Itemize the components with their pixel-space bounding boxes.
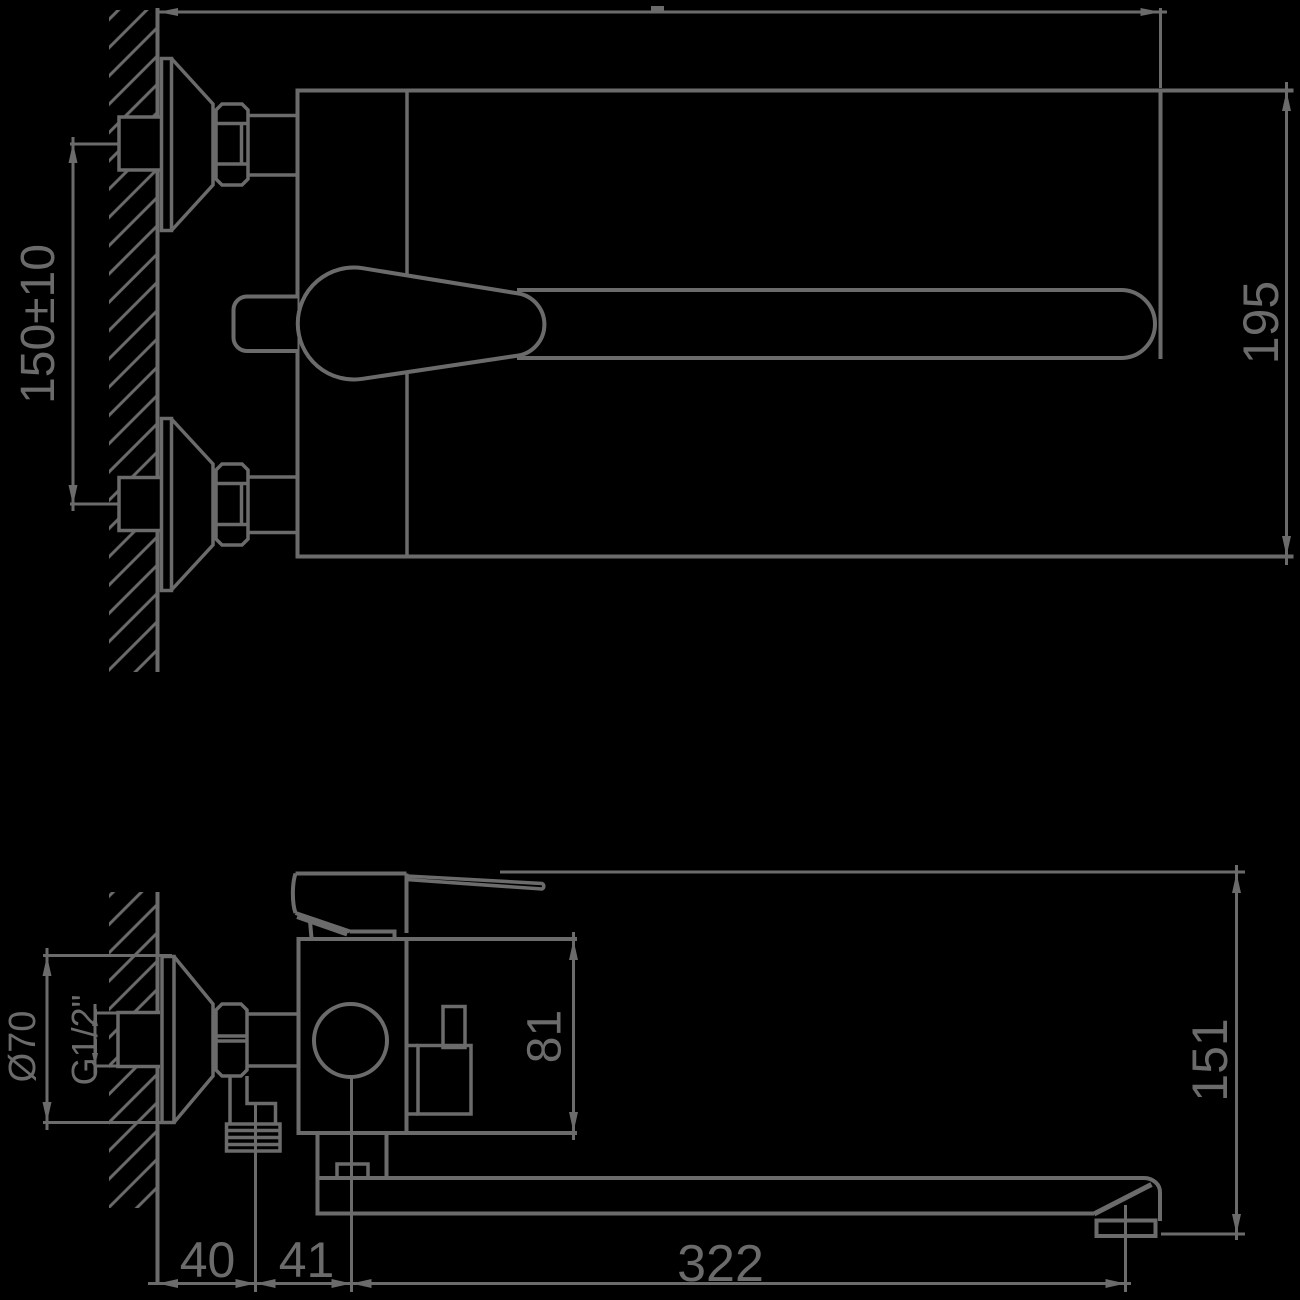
svg-text:40: 40 <box>180 1232 236 1288</box>
svg-text:150±10: 150±10 <box>12 244 65 404</box>
svg-text:322: 322 <box>677 1235 764 1293</box>
svg-text:Ø70: Ø70 <box>2 1011 44 1083</box>
svg-text:81: 81 <box>519 1010 572 1063</box>
svg-text:151: 151 <box>1182 1018 1238 1101</box>
svg-text:G1/2": G1/2" <box>64 995 105 1086</box>
svg-text:195: 195 <box>1233 281 1289 364</box>
svg-text:41: 41 <box>279 1232 335 1288</box>
